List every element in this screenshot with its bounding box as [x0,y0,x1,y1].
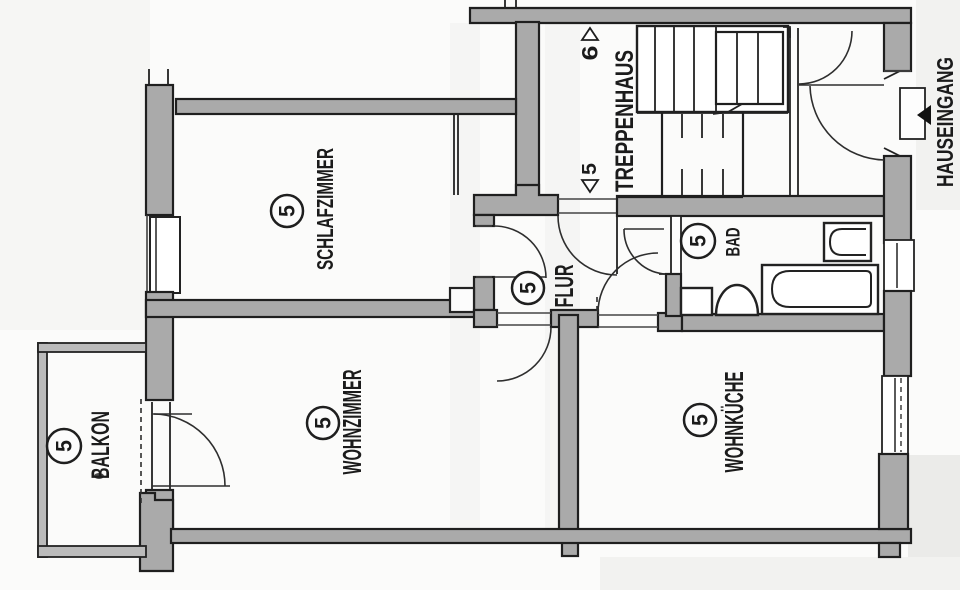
svg-text:WOHNZIMMER: WOHNZIMMER [337,369,367,474]
svg-text:5: 5 [516,282,541,294]
svg-text:BALKON: BALKON [87,411,115,479]
svg-text:5: 5 [579,163,601,175]
svg-text:6: 6 [578,46,603,61]
svg-text:5: 5 [311,417,336,429]
svg-text:5: 5 [688,414,713,426]
svg-text:5: 5 [52,440,77,452]
svg-text:5: 5 [686,235,711,247]
svg-text:FLUR: FLUR [549,264,579,307]
svg-text:WOHNKÜCHE: WOHNKÜCHE [719,372,749,473]
svg-text:5: 5 [275,205,300,217]
svg-text:SCHLAFZIMMER: SCHLAFZIMMER [312,148,338,270]
svg-text:HAUSEINGANG: HAUSEINGANG [932,57,958,187]
svg-text:BAD: BAD [724,228,745,257]
svg-text:TREPPENHAUS: TREPPENHAUS [611,50,639,192]
